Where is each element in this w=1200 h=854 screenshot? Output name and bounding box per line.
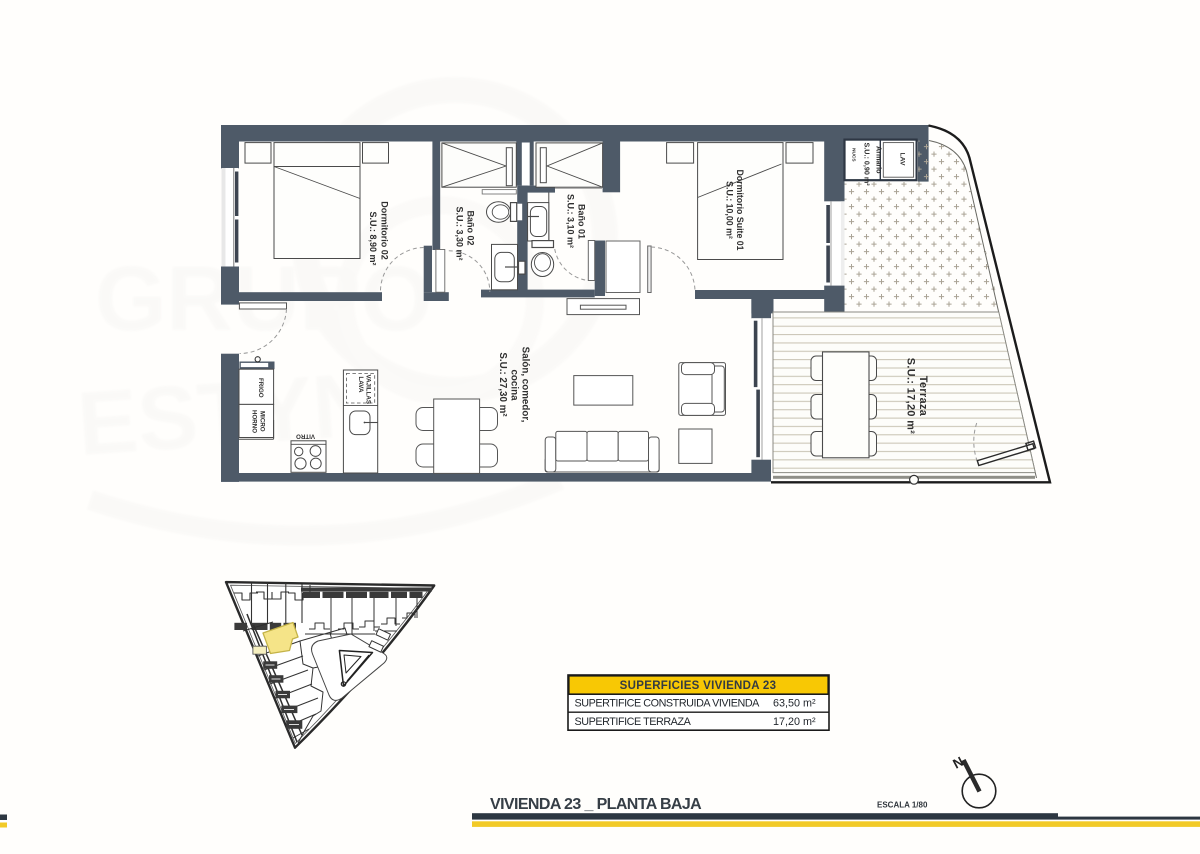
svg-text:S.U.: 17,20 m²: S.U.: 17,20 m²: [905, 358, 917, 434]
svg-text:S.U.: 0,90 m²: S.U.: 0,90 m²: [863, 143, 872, 187]
svg-text:LAV: LAV: [899, 153, 906, 167]
svg-text:LAVA: LAVA: [357, 377, 364, 393]
svg-text:S.U.: 8,90 m²: S.U.: 8,90 m²: [368, 211, 378, 265]
svg-text:S.U.: 27,30 m²: S.U.: 27,30 m²: [497, 352, 508, 417]
svg-text:SUPERTIFICE CONSTRUIDA VIVIEND: SUPERTIFICE CONSTRUIDA VIVIENDA: [575, 698, 761, 710]
svg-text:VITRO: VITRO: [296, 433, 315, 440]
svg-text:S.U.: 10,00 m²: S.U.: 10,00 m²: [725, 181, 735, 239]
svg-text:17,20 m²: 17,20 m²: [773, 716, 816, 728]
svg-text:Dormitorio 02: Dormitorio 02: [380, 201, 390, 260]
svg-text:63,50 m²: 63,50 m²: [773, 698, 816, 710]
svg-text:SUPERTIFICE TERRAZA: SUPERTIFICE TERRAZA: [575, 716, 692, 728]
svg-text:NUCS: NUCS: [851, 148, 857, 162]
svg-text:Terraza: Terraza: [917, 376, 929, 417]
svg-text:cocina: cocina: [509, 369, 520, 401]
svg-text:Armario: Armario: [875, 146, 884, 174]
svg-text:Baño 02: Baño 02: [466, 210, 476, 245]
svg-text:Salón, comedor,: Salón, comedor,: [520, 347, 531, 423]
svg-text:Dormitorio Suite 01: Dormitorio Suite 01: [735, 169, 745, 250]
svg-text:Baño 01: Baño 01: [577, 204, 587, 239]
svg-text:S.U.: 3,10 m²: S.U.: 3,10 m²: [566, 194, 576, 248]
svg-text:N: N: [950, 754, 966, 772]
svg-text:MICRO: MICRO: [259, 411, 266, 432]
svg-text:VIVIENDA 23 _ PLANTA BAJA: VIVIENDA 23 _ PLANTA BAJA: [490, 796, 702, 813]
svg-text:VAJILLAS: VAJILLAS: [365, 375, 372, 404]
svg-text:SUPERFICIES VIVIENDA 23: SUPERFICIES VIVIENDA 23: [620, 680, 777, 692]
svg-text:HORNO: HORNO: [251, 410, 258, 433]
svg-text:FRIGO: FRIGO: [257, 378, 264, 398]
svg-text:ESCALA 1/80: ESCALA 1/80: [877, 801, 928, 810]
